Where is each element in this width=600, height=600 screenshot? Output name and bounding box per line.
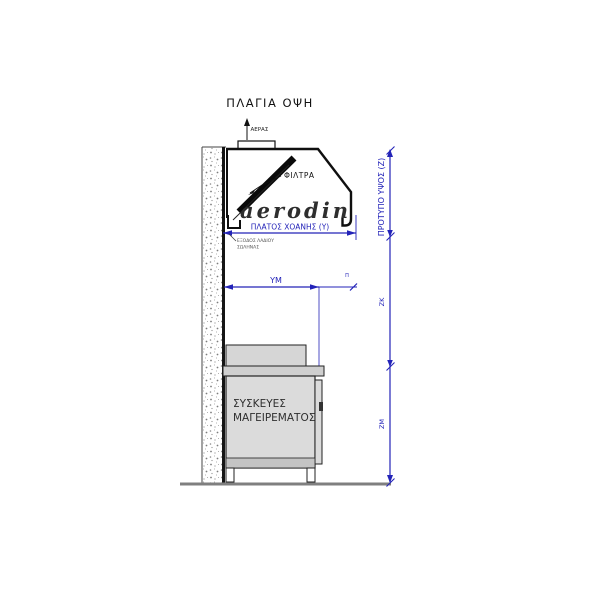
brand-logo: aerodin — [240, 198, 351, 223]
oil-note-leader — [229, 234, 236, 241]
arrow-appliance-top — [387, 360, 393, 367]
ym-label: ΥΜ — [269, 276, 282, 285]
appliance-side-panel — [315, 380, 322, 464]
upper-segment-label: ΖΚ — [378, 297, 386, 306]
oil-gutter — [228, 215, 240, 228]
filters-label: ΦΙΛΤΡΑ — [284, 171, 315, 180]
appliance-handle — [319, 402, 323, 411]
ym-arrow-left — [224, 284, 233, 290]
lower-segment-label: ΖΜ — [378, 419, 386, 429]
drawing-title: ΠΛΑΓΙΑ ΟΨΗ — [226, 96, 313, 110]
vertical-dimension: ΠΡΟΤΥΠΟ ΥΨΟΣ (Ζ) ΖΚ ΖΜ — [377, 147, 395, 487]
technical-drawing-page: ΠΛΑΓΙΑ ΟΨΗ ΑΕΡΑΣ ΦΙΛΤΡΑ aerodin — [0, 0, 600, 600]
appliance-label-line1: ΣΥΣΚΕΥΕΣ — [233, 398, 286, 410]
side-view-drawing: ΠΛΑΓΙΑ ΟΨΗ ΑΕΡΑΣ ΦΙΛΤΡΑ aerodin — [0, 0, 600, 600]
overhang-label: Π — [345, 273, 349, 279]
width-arrow-right — [347, 230, 356, 236]
standard-height-label: ΠΡΟΤΥΠΟ ΥΨΟΣ (Ζ) — [377, 158, 386, 237]
oil-note-line2: ΣΩΛΗΝΑΣ — [237, 245, 259, 251]
oil-outlet-note: ΕΞΟΔΟΣ ΛΑΔΙΟΥ ΣΩΛΗΝΑΣ — [229, 234, 274, 251]
appliance-back-panel — [226, 345, 306, 366]
air-arrow-head — [244, 118, 250, 126]
ym-arrow-right — [310, 284, 319, 290]
air-label: ΑΕΡΑΣ — [251, 127, 269, 133]
cooking-appliance: ΣΥΣΚΕΥΕΣ ΜΑΓΕΙΡΕΜΑΤΟΣ — [223, 345, 324, 482]
appliance-leg-left — [226, 468, 234, 482]
hood-assembly: ΑΕΡΑΣ ΦΙΛΤΡΑ aerodin — [226, 118, 351, 228]
hood-width-label: ΠΛΑΤΟΣ ΧΟΑΝΗΣ (Υ) — [251, 223, 330, 232]
oil-note-line1: ΕΞΟΔΟΣ ΛΑΔΙΟΥ — [237, 238, 274, 244]
appliance-label-line2: ΜΑΓΕΙΡΕΜΑΤΟΣ — [233, 412, 315, 424]
wall-section — [202, 147, 226, 485]
wall-hatch — [202, 147, 222, 485]
vertical-arrow-bottom — [387, 475, 393, 483]
appliance-base-band — [226, 458, 315, 468]
arrow-hood-bottom — [387, 230, 393, 237]
appliance-counter-top — [223, 366, 324, 376]
appliance-leg-right — [307, 468, 315, 482]
